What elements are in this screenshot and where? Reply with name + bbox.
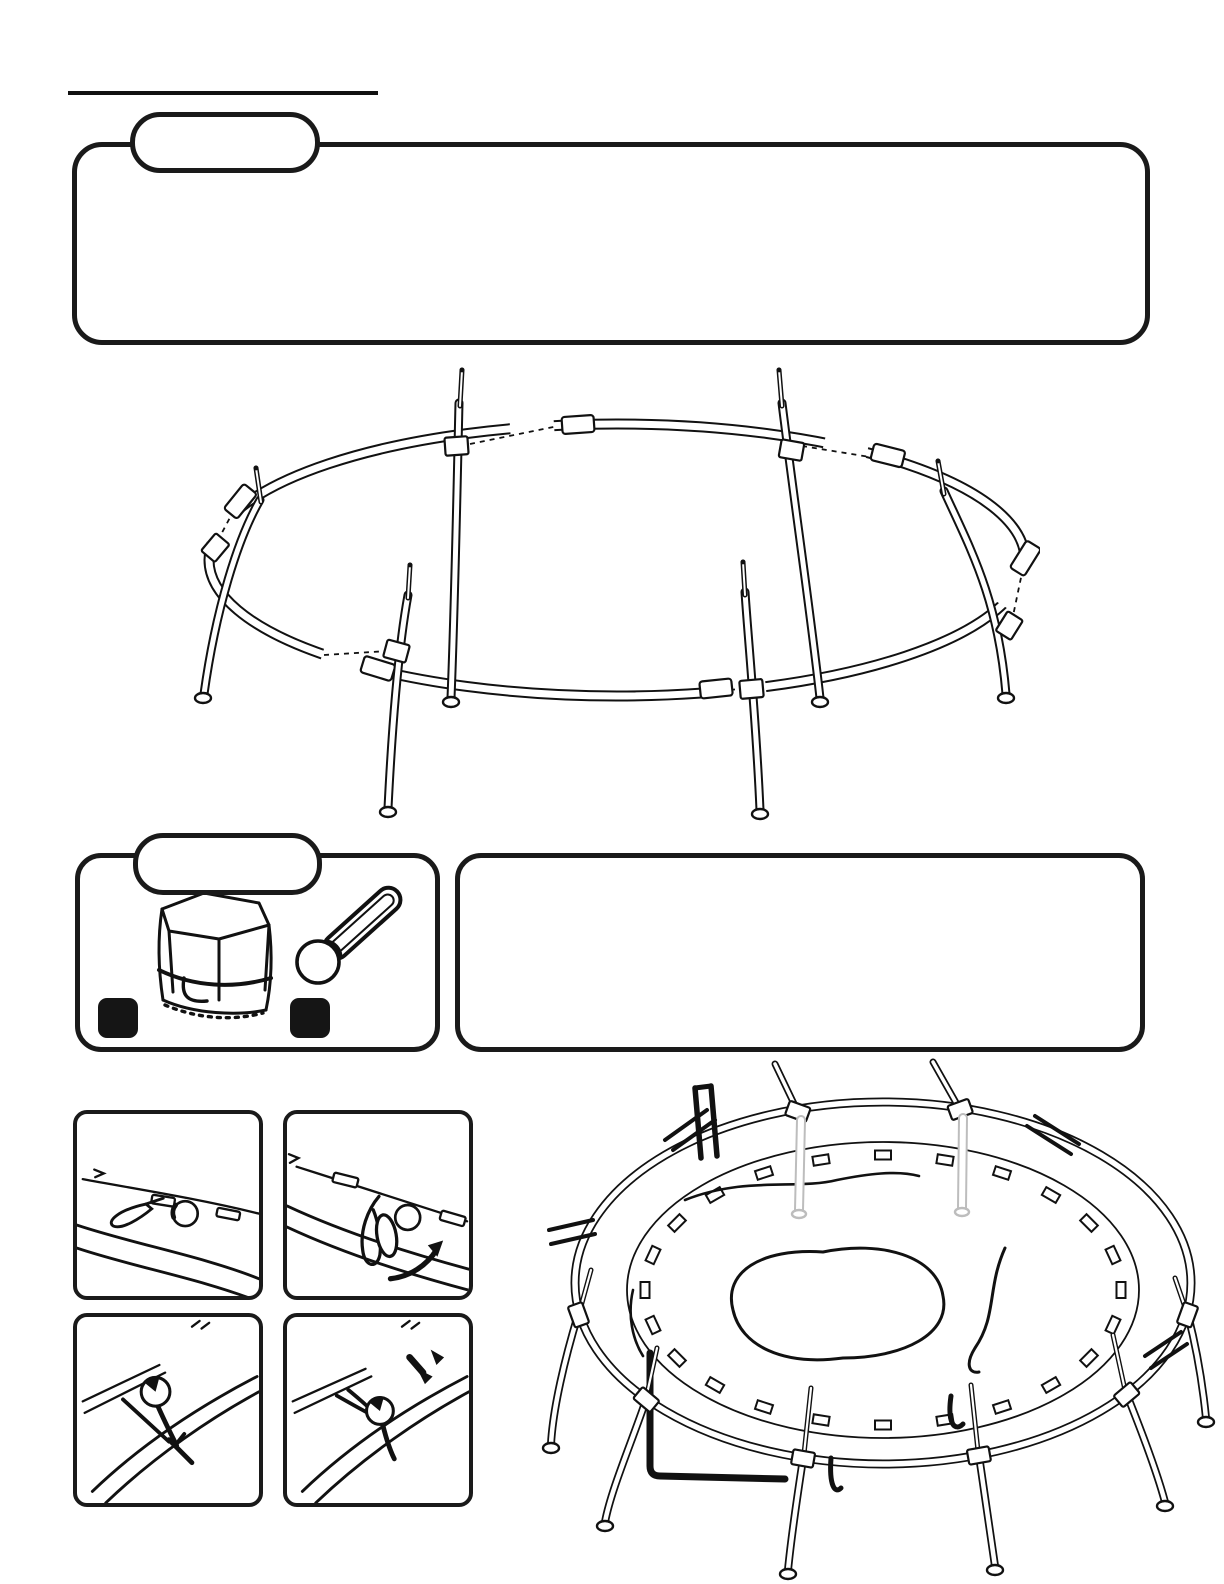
detail-panel-2 (283, 1110, 473, 1300)
storage-bag-icon (152, 882, 287, 1034)
detail-panel-1 (73, 1110, 263, 1300)
trampoline-mat-installed-icon (535, 1058, 1224, 1584)
pull-tool-pull-down-icon (287, 1317, 469, 1503)
pull-tool-hooked-on-loop-icon (77, 1317, 259, 1503)
info-box (455, 853, 1145, 1052)
detail-panel-3 (73, 1313, 263, 1507)
mat-loop-and-grommet-icon (77, 1114, 259, 1296)
heading-underline (68, 91, 378, 95)
step-badge (130, 112, 320, 173)
part-tag (290, 998, 330, 1038)
frame-ring-exploded-icon (180, 358, 1040, 826)
loop-wrap-around-rail-arrow-icon (287, 1114, 469, 1296)
pull-tool-icon (288, 878, 408, 998)
manual-page (0, 0, 1224, 1584)
detail-panel-4 (283, 1313, 473, 1507)
parts-badge (133, 833, 322, 895)
part-tag (98, 998, 138, 1038)
